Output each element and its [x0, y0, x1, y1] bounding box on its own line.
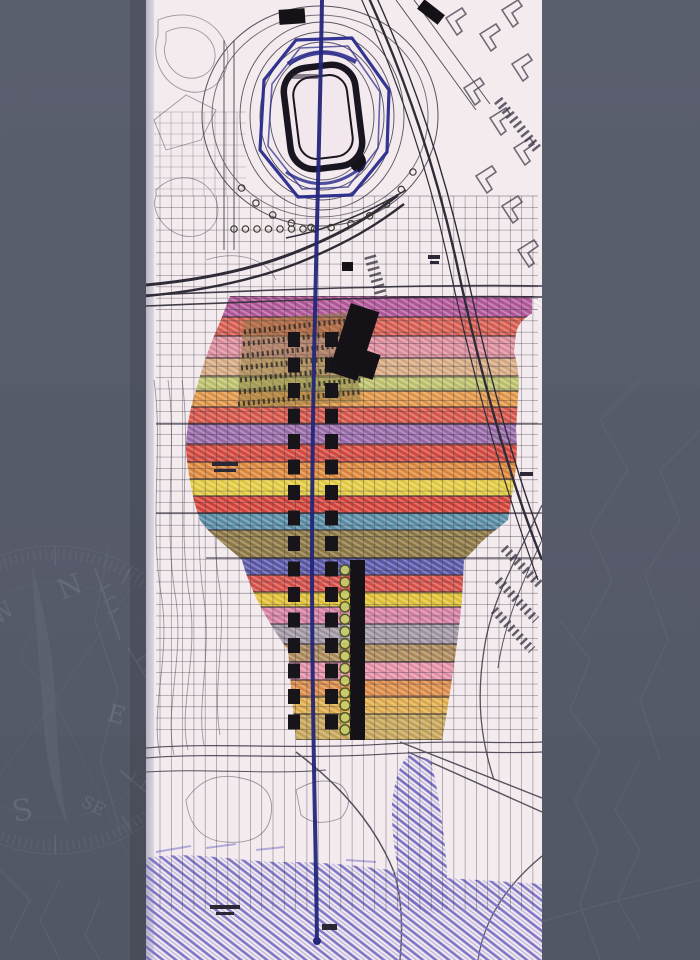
green-circle	[340, 639, 350, 649]
tower-block	[288, 536, 300, 551]
tower-block	[288, 409, 300, 424]
green-circle	[340, 590, 350, 600]
svg-text:W: W	[0, 597, 20, 631]
tower-block	[288, 358, 300, 373]
tower-block	[288, 485, 300, 500]
svg-text:N: N	[52, 567, 87, 607]
tower-block	[325, 383, 338, 398]
tower-block	[325, 536, 338, 551]
tower-block	[325, 613, 338, 628]
tower-block	[288, 638, 300, 653]
tower-block	[288, 587, 300, 602]
tower-block	[288, 511, 300, 526]
tower-block	[288, 383, 300, 398]
tower-block	[325, 434, 338, 449]
svg-text:S: S	[9, 792, 35, 830]
tower-block	[288, 715, 300, 730]
green-circle	[340, 713, 350, 723]
tower-block	[325, 689, 338, 704]
map-edge-shadow	[130, 0, 146, 960]
map-scan	[146, 0, 542, 960]
slide: N W E SE S	[0, 0, 700, 960]
green-circle	[340, 725, 350, 735]
green-circle	[340, 676, 350, 686]
tower-block	[288, 332, 300, 347]
green-circle	[340, 602, 350, 612]
green-circle	[340, 565, 350, 575]
tower-block	[325, 485, 338, 500]
green-circle	[340, 663, 350, 673]
tower-block	[325, 587, 338, 602]
tower-block	[288, 460, 300, 475]
green-circle	[340, 614, 350, 624]
tower-block	[325, 409, 338, 424]
axis-end-mark	[313, 937, 321, 945]
compass-needle	[32, 566, 68, 826]
tower-block	[325, 332, 338, 347]
scan-edge-strip	[146, 0, 154, 960]
tower-block	[325, 511, 338, 526]
green-circle	[340, 688, 350, 698]
svg-text:E: E	[104, 699, 128, 731]
tower-block	[288, 613, 300, 628]
tower-block	[288, 664, 300, 679]
tower-block	[325, 562, 338, 577]
green-circle	[340, 700, 350, 710]
tower-block	[325, 715, 338, 730]
tower-block	[288, 434, 300, 449]
green-circle	[340, 627, 350, 637]
tower-block	[325, 638, 338, 653]
tower-block	[325, 460, 338, 475]
tower-block	[288, 562, 300, 577]
green-circle	[340, 577, 350, 587]
tower-block	[325, 664, 338, 679]
tower-block	[288, 689, 300, 704]
green-circle	[340, 651, 350, 661]
svg-text:SE: SE	[78, 792, 109, 821]
